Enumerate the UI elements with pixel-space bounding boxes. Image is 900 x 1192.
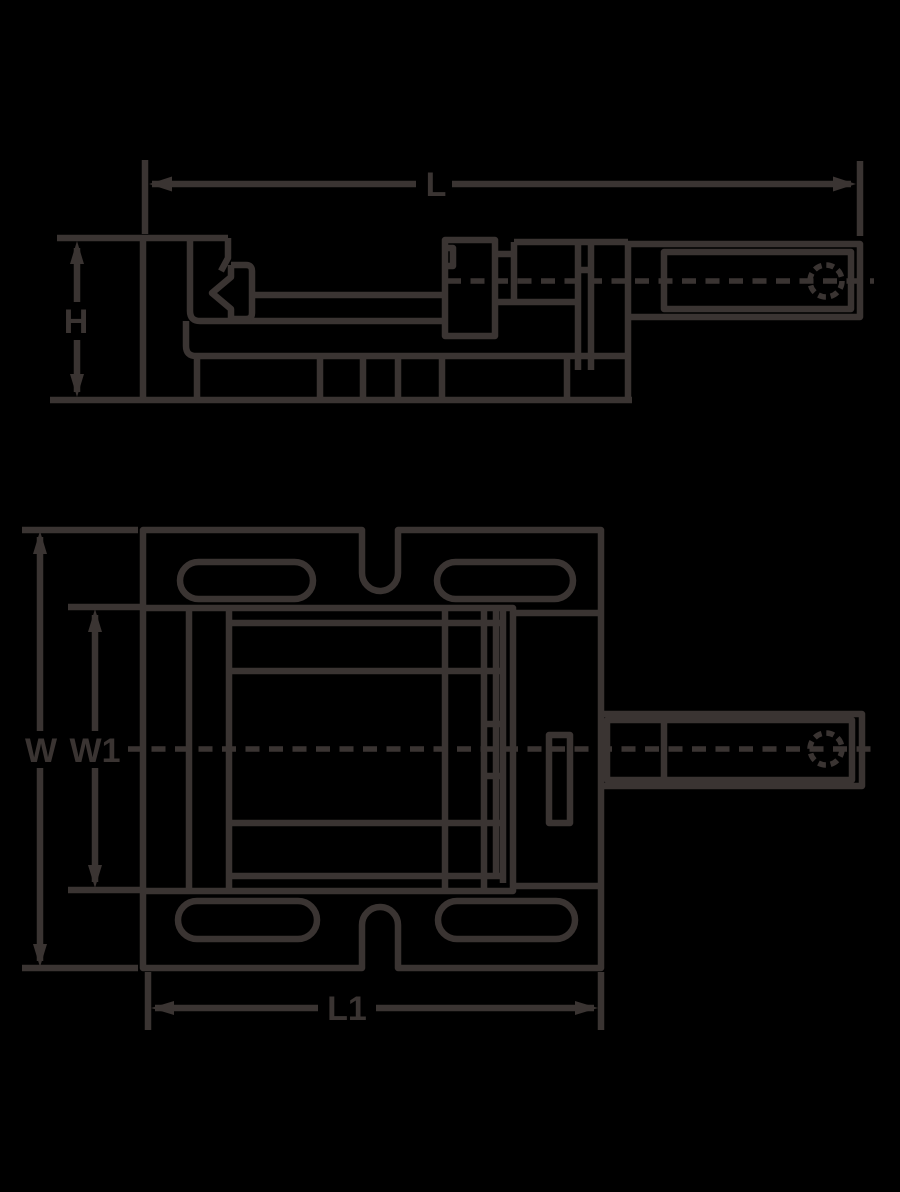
dim-W1-arrow-up xyxy=(88,609,102,632)
v-notch xyxy=(212,265,231,320)
vise-technical-drawing-page: L H xyxy=(0,0,900,1192)
dimension-L: L xyxy=(145,160,860,236)
dim-H-arrow-up xyxy=(70,241,84,264)
dim-W1-arrow-down xyxy=(88,865,102,888)
casting-top-edge xyxy=(143,608,601,613)
movable-jaw xyxy=(445,240,514,336)
vise-technical-drawing: L H xyxy=(0,0,900,1192)
mounting-slot-bottom-left xyxy=(178,901,317,939)
bearing-block xyxy=(514,242,628,370)
fixed-jaw-edge xyxy=(221,238,228,271)
side-ways-ledge xyxy=(186,321,628,356)
top-view: W W1 L1 xyxy=(22,530,877,1030)
dim-L-arrow-left xyxy=(149,177,172,192)
side-base-ribs xyxy=(320,358,567,397)
dim-W-arrow-down xyxy=(33,944,47,967)
mounting-slot-bottom-right xyxy=(438,901,575,939)
label-W: W xyxy=(25,732,58,770)
mounting-slot-top-left xyxy=(180,562,313,599)
dim-L1-arrow-right xyxy=(575,1001,598,1015)
dim-L-arrow-right xyxy=(833,177,856,192)
fixed-jaw xyxy=(212,238,252,320)
mounting-slot-top-right xyxy=(437,562,573,599)
dim-W-arrow-up xyxy=(33,531,47,554)
side-body xyxy=(50,238,860,400)
dimension-L1: L1 xyxy=(148,972,601,1030)
label-L1: L1 xyxy=(327,990,367,1028)
casting-bottom-edge xyxy=(143,886,601,891)
side-view: L H xyxy=(50,160,874,400)
dim-H-arrow-down xyxy=(70,374,84,397)
label-W1: W1 xyxy=(70,732,121,770)
dim-L1-arrow-left xyxy=(151,1001,174,1015)
label-L: L xyxy=(426,166,447,204)
label-H: H xyxy=(64,303,89,341)
